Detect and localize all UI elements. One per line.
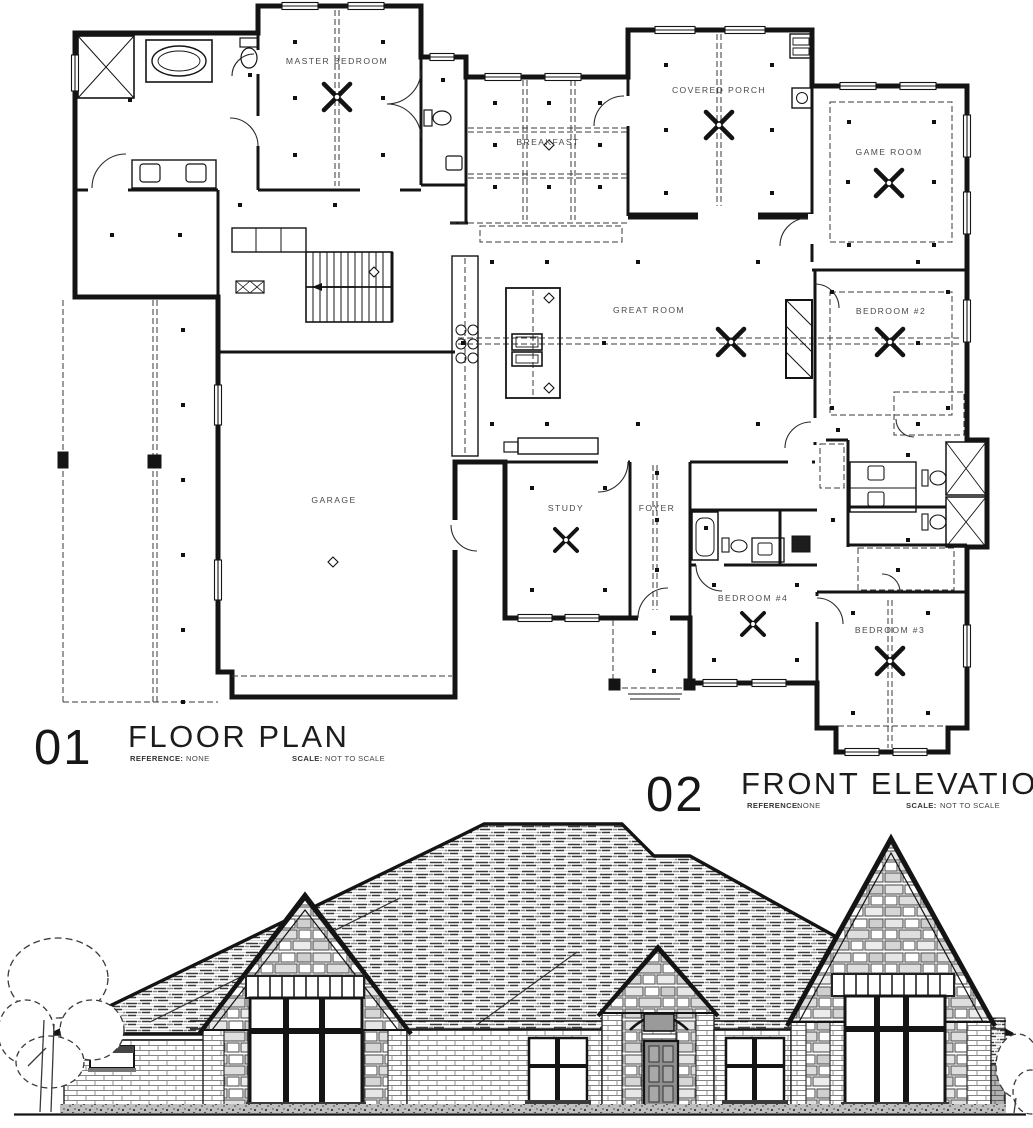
room-label-covered-porch: COVERED PORCH [672, 85, 766, 95]
front-elevation-drawing [0, 824, 1033, 1115]
architectural-sheet: MASTER BEDROOM BREAKFAST COVERED PORCH G… [0, 0, 1033, 1128]
front-elevation-number: 02 [646, 768, 705, 822]
front-elevation-reference-label: REFERENCE: [747, 801, 800, 810]
floor-plan-drawing: MASTER BEDROOM BREAKFAST COVERED PORCH G… [58, 3, 987, 756]
front-elevation-reference-value: NONE [797, 801, 821, 810]
room-label-great-room: GREAT ROOM [613, 305, 685, 315]
floor-plan-number: 01 [34, 721, 93, 775]
transom-window [644, 1014, 674, 1031]
floor-plan-scale-value: NOT TO SCALE [325, 754, 385, 763]
foundation-band [60, 1104, 1006, 1113]
right-front-window [722, 1038, 788, 1105]
floor-plan-title-text: FLOOR PLAN [128, 719, 349, 754]
floor-plan-scale-label: SCALE: [292, 754, 323, 763]
front-elevation-title-text: FRONT ELEVATION [741, 766, 1033, 801]
left-front-window [525, 1038, 591, 1105]
front-elevation-title: 02 FRONT ELEVATION REFERENCE: NONE SCALE… [646, 766, 1033, 822]
room-label-master-bedroom: MASTER BEDROOM [286, 56, 388, 66]
plan-windows [72, 3, 971, 756]
sheet-drawing: MASTER BEDROOM BREAKFAST COVERED PORCH G… [0, 0, 1033, 1128]
title-blocks: 01 FLOOR PLAN REFERENCE: NONE SCALE: NOT… [34, 719, 1033, 822]
exterior-walls [75, 6, 987, 752]
room-label-game-room: GAME ROOM [855, 147, 922, 157]
room-label-bedroom-3: BEDROOM #3 [855, 625, 925, 635]
room-label-bedroom-2: BEDROOM #2 [856, 306, 926, 316]
right-gable-window [841, 996, 949, 1108]
interior-walls [75, 33, 967, 683]
front-elevation-scale-label: SCALE: [906, 801, 937, 810]
front-elevation-scale-value: NOT TO SCALE [940, 801, 1000, 810]
room-label-foyer: FOYER [639, 503, 676, 513]
room-label-breakfast: BREAKFAST [516, 137, 579, 147]
ceiling-dashed-lines [63, 10, 964, 748]
floor-plan-title: 01 FLOOR PLAN REFERENCE: NONE SCALE: NOT… [34, 719, 385, 775]
room-label-bedroom-4: BEDROOM #4 [718, 593, 788, 603]
left-gable-window [246, 998, 366, 1108]
floor-plan-reference-label: REFERENCE: [130, 754, 183, 763]
floor-plan-reference-value: NONE [186, 754, 210, 763]
fixtures [58, 34, 986, 699]
room-label-garage: GARAGE [311, 495, 356, 505]
room-label-study: STUDY [548, 503, 584, 513]
